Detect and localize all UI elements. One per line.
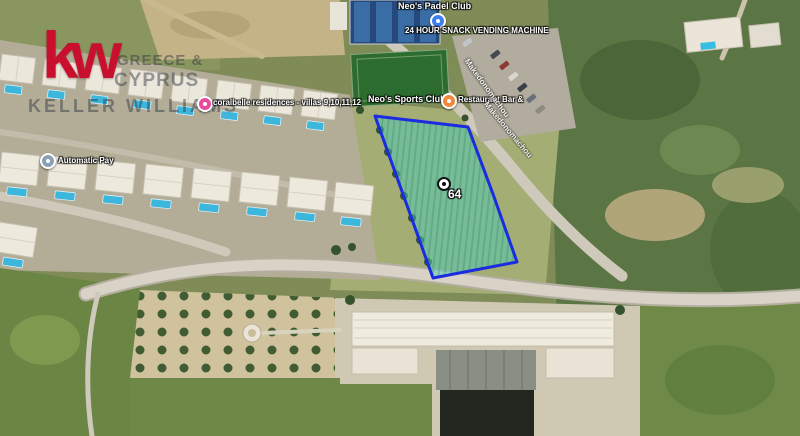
residences-marker-icon [203,102,207,106]
listing-map-image: kw GREECE & CYPRUS KELLER WILLIAMS Neo's… [0,0,800,436]
watermark-line1: GREECE & [117,52,203,69]
restaurant-marker-icon [447,99,451,103]
residences-marker[interactable] [197,96,213,112]
restaurant-marker[interactable] [441,93,457,109]
watermark-line2: CYPRUS [114,70,199,92]
automatic-pay-label: Automatic Pay [58,156,114,165]
padel-club-label: Neo's Padel Club [398,1,471,11]
vending-machine-label: 24 HOUR SNACK VENDING MACHINE [405,26,549,35]
vending-machine-marker-icon [436,19,440,23]
sports-club-label: Neo's Sports Club [368,94,446,104]
residences-label: coralbelle residences - villas 9,10,11,1… [213,98,361,107]
parcel-number-label: 64 [448,187,461,201]
automatic-pay-marker[interactable] [40,153,56,169]
automatic-pay-marker-icon [46,159,50,163]
kw-logo: kw [42,22,114,88]
